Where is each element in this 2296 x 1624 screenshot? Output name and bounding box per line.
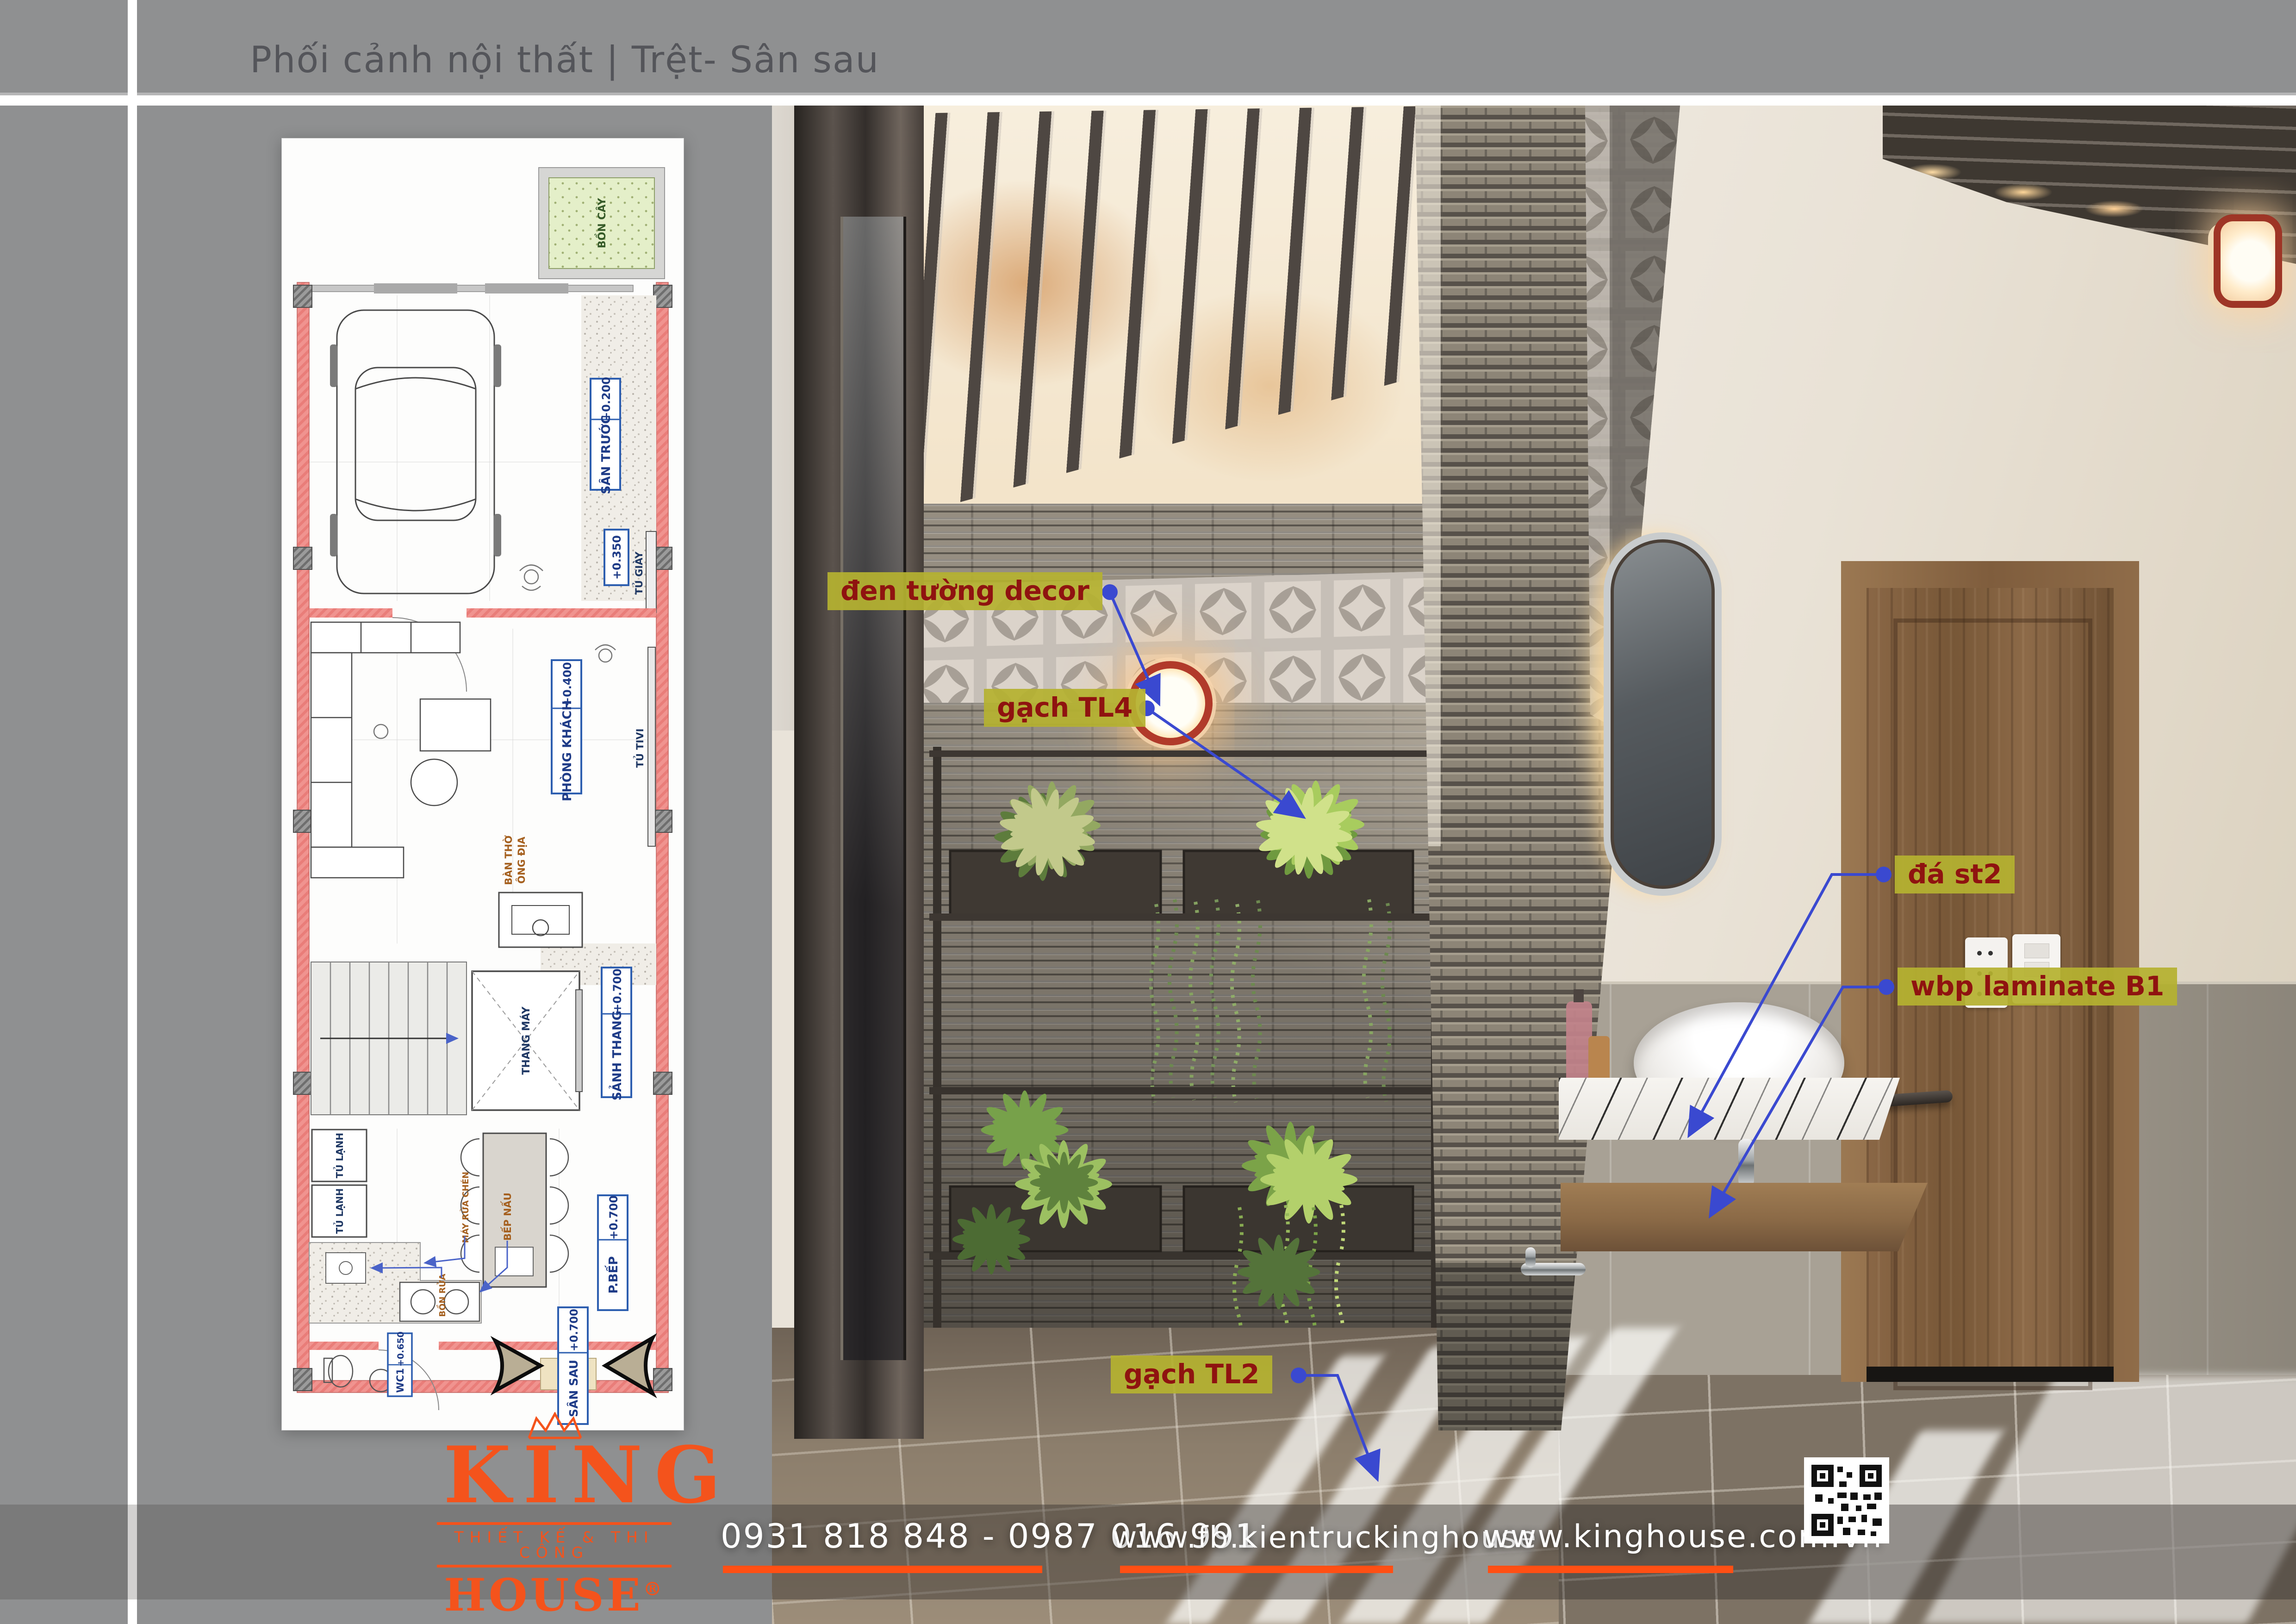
brand-rule [437,1522,672,1525]
brand-rule [437,1565,672,1568]
footer-underline [723,1566,1042,1573]
brand-logo: KING THIẾT KẾ & THI CÔNG HOUSE® [435,1412,673,1618]
footer-underline [1120,1566,1393,1573]
presentation-board: Phối cảnh nội thất | Trệt- Sân sau [0,0,2296,1624]
material-label-den-tuong-decor: đen tường decor [828,572,1102,610]
material-label-gach-tl2: gạch TL2 [1111,1355,1272,1393]
footer-underline [1488,1566,1733,1573]
brand-house: HOUSE® [435,1573,673,1618]
footer-facebook: www.fb.kientruckinghouse [1113,1523,1537,1553]
material-label-da-st2: đá st2 [1895,856,2015,893]
brand-tagline: THIẾT KẾ & THI CÔNG [435,1530,673,1560]
qr-code [1804,1457,1889,1543]
registered-mark: ® [643,1578,665,1600]
brand-king: KING [443,1436,673,1514]
material-label-wbp-laminate-b1: wbp laminate B1 [1898,968,2177,1006]
material-label-gach-tl4: gạch TL4 [984,689,1145,727]
